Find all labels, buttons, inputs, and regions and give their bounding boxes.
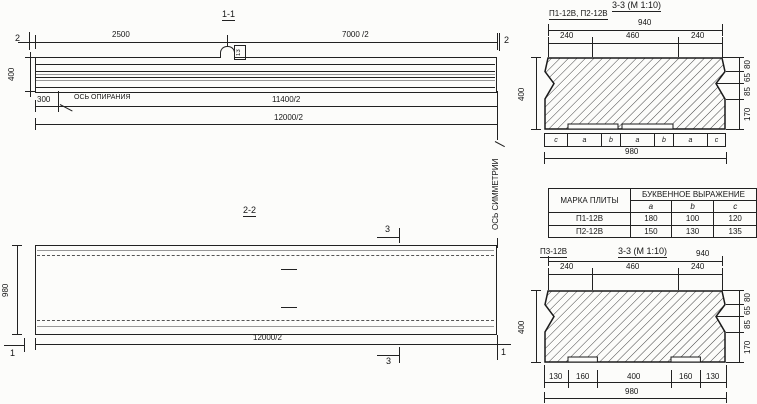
dim-tick	[726, 332, 744, 333]
table-row: П1-12В 180 100 120	[549, 213, 757, 225]
dim-tick	[726, 71, 744, 72]
dim-tick	[548, 256, 549, 266]
dim-tick	[722, 57, 744, 58]
dim-tick	[35, 118, 36, 130]
dim-label-65: 65	[744, 72, 752, 83]
dim-tick	[678, 268, 679, 290]
marker-line	[497, 335, 498, 360]
dim-tick	[544, 392, 545, 403]
dim-tick	[544, 365, 545, 388]
dim-tick	[726, 129, 744, 130]
cross-section-p1-p2	[544, 57, 726, 130]
dim-tick	[678, 37, 679, 57]
dim-line	[739, 290, 740, 363]
dim-tick	[592, 37, 593, 57]
dim-label-240: 240	[691, 263, 704, 271]
dim-label-240: 240	[691, 32, 704, 40]
dim-tick	[726, 152, 727, 164]
strand-line	[36, 64, 495, 65]
hidden-line	[37, 320, 494, 321]
dim-label-11400: 11400/2	[272, 96, 300, 104]
dim-tick	[722, 256, 723, 266]
symmetry-axis-line	[497, 238, 498, 248]
dim-tick	[12, 245, 22, 246]
table-col-c: c	[714, 201, 757, 213]
dim-label-240: 240	[560, 263, 573, 271]
dim-line	[544, 158, 726, 159]
dim-line	[536, 290, 537, 363]
dim-line	[544, 382, 726, 383]
dim-tick	[497, 33, 498, 50]
cross-section-p3	[544, 290, 726, 363]
marker-line	[399, 228, 400, 243]
dim-line	[544, 398, 726, 399]
marker-line	[29, 32, 30, 50]
dim-tick	[531, 290, 541, 291]
strand-line	[36, 71, 495, 72]
dim-tick	[716, 316, 744, 317]
dim-tick	[726, 362, 744, 363]
dim-tick	[531, 129, 541, 130]
dim-tick	[722, 290, 744, 291]
dim-tick	[592, 268, 593, 290]
dim-line	[35, 344, 497, 345]
dim-label-980-bottom-section: 980	[625, 388, 638, 396]
dim-label-85: 85	[744, 318, 752, 331]
dim-label-400-top-section: 400	[518, 81, 526, 107]
dim-label-160: 160	[576, 373, 589, 381]
dim-tick	[568, 370, 569, 388]
extension-line	[58, 91, 59, 112]
center-dash	[281, 307, 297, 308]
letter-cell: b	[655, 134, 674, 146]
loop-tag-label: 13	[236, 47, 242, 58]
center-dash	[281, 269, 297, 270]
section-3-3-bottom-title: 3-3 (М 1:10)	[618, 247, 667, 258]
table-cell-a: 180	[631, 213, 672, 225]
dim-label-65: 65	[744, 305, 752, 316]
dim-label-12000: 12000/2	[274, 114, 303, 122]
dim-line	[548, 43, 722, 44]
dim-line	[536, 57, 537, 130]
dim-label-170: 170	[744, 103, 752, 125]
dim-label-400: 400	[8, 62, 16, 86]
dim-label-170: 170	[744, 336, 752, 358]
dim-tick	[726, 392, 727, 403]
table-header-mark: МАРКА ПЛИТЫ	[549, 189, 631, 213]
dim-label-12000-plan: 12000/2	[253, 334, 282, 342]
dim-tick	[548, 268, 549, 290]
dim-label-400-bottom-section: 400	[518, 314, 526, 340]
marker-line	[24, 338, 25, 352]
plan-outline	[35, 245, 497, 335]
dim-label-460: 460	[626, 32, 639, 40]
dim-label-85: 85	[744, 85, 752, 98]
plate-mark-p3-label: П3-12В	[540, 248, 567, 258]
dim-tick	[548, 37, 549, 57]
strand-line	[36, 87, 495, 88]
strand-line	[36, 80, 495, 81]
dim-tick	[531, 362, 541, 363]
letter-cell: b	[602, 134, 621, 146]
dim-label-130: 130	[549, 373, 562, 381]
dim-label-240: 240	[560, 32, 573, 40]
dim-label-940: 940	[638, 19, 651, 27]
section-1-1-title: 1-1	[222, 10, 235, 21]
dim-label-80: 80	[744, 291, 752, 304]
loop-tag-box: 13	[234, 45, 246, 60]
dim-line	[739, 57, 740, 130]
dim-tick	[726, 99, 744, 100]
letter-cell: c	[545, 134, 568, 146]
section-marker-1-left: 1	[10, 349, 15, 358]
dim-tick	[671, 370, 672, 388]
dim-label-400: 400	[627, 373, 640, 381]
dim-label-160: 160	[679, 373, 692, 381]
dim-tick	[25, 57, 35, 58]
table-row: П2-12В 150 130 135	[549, 225, 757, 237]
table-col-b: b	[671, 201, 714, 213]
letter-cell: c	[708, 134, 725, 146]
table-cell-mark: П1-12В	[549, 213, 631, 225]
table-cell-c: 120	[714, 213, 757, 225]
letter-cell: a	[621, 134, 655, 146]
dim-tick	[722, 268, 723, 290]
section-3-3-top-title: 3-3 (М 1:10)	[612, 1, 661, 12]
dim-tick	[12, 334, 22, 335]
table-header-expression: БУКВЕННОЕ ВЫРАЖЕНИЕ	[631, 189, 757, 201]
dim-label-460: 460	[626, 263, 639, 271]
table-col-a: a	[631, 201, 672, 213]
dim-label-980-top-section: 980	[625, 148, 638, 156]
section-marker-3-bottom: 3	[386, 357, 391, 366]
section-marker-2-right: 2	[504, 36, 509, 45]
dim-tick	[25, 91, 35, 92]
section-marker-1-right: 1	[501, 348, 506, 357]
dim-label-300: 300	[37, 96, 50, 104]
edge-line	[37, 326, 494, 327]
lifting-loop	[220, 46, 235, 58]
support-axis-label: ОСЬ ОПИРАНИЯ	[74, 94, 131, 101]
dim-label-940: 940	[696, 250, 709, 258]
table-cell-c: 135	[714, 225, 757, 237]
dim-tick	[544, 152, 545, 164]
dim-label-80: 80	[744, 58, 752, 71]
dim-line	[17, 245, 18, 335]
strand-line	[36, 74, 495, 75]
dim-tick	[716, 83, 744, 84]
hidden-line	[37, 255, 494, 256]
dim-tick	[531, 57, 541, 58]
plate-marks-label: П1-12В, П2-12В	[549, 10, 608, 20]
strand-line	[36, 77, 495, 78]
table-cell-b: 100	[671, 213, 714, 225]
marker-line	[399, 347, 400, 363]
dim-tick	[722, 37, 723, 57]
dim-tick	[700, 370, 701, 388]
break-jog	[495, 141, 505, 147]
marker-line	[377, 237, 399, 238]
symmetry-axis-label: ОСЬ СИММЕТРИИ	[492, 150, 500, 238]
dim-tick	[548, 24, 549, 36]
dim-tick	[35, 100, 36, 112]
dim-tick	[35, 338, 36, 350]
dim-tick	[597, 370, 598, 388]
letter-cell: a	[568, 134, 602, 146]
table-cell-b: 130	[671, 225, 714, 237]
table-cell-mark: П2-12В	[549, 225, 631, 237]
dim-label-7000: 7000 /2	[342, 31, 369, 39]
letter-cell: a	[674, 134, 708, 146]
section-marker-3-top: 3	[385, 225, 390, 234]
letter-dim-strip: c a b a b a c	[544, 133, 726, 147]
dim-line	[548, 274, 722, 275]
plate-letter-table: МАРКА ПЛИТЫ БУКВЕННОЕ ВЫРАЖЕНИЕ a b c П1…	[548, 188, 757, 238]
section-marker-2-left: 2	[15, 34, 20, 43]
table-cell-a: 150	[631, 225, 672, 237]
dim-tick	[35, 35, 36, 49]
dim-label-130: 130	[706, 373, 719, 381]
dim-label-980: 980	[2, 277, 10, 303]
section-2-2-title: 2-2	[243, 206, 256, 217]
dim-tick	[722, 24, 723, 36]
edge-line	[37, 250, 494, 251]
marker-line	[4, 345, 24, 346]
dim-tick	[726, 304, 744, 305]
drawing-sheet: 1-1 2500 7000 /2 2 2 13 400 300 ОСЬ ОПИР…	[0, 0, 757, 404]
marker-line	[499, 33, 500, 51]
symmetry-axis-line	[497, 91, 498, 140]
dim-label-2500: 2500	[112, 31, 130, 39]
dim-tick	[726, 365, 727, 388]
dim-line	[18, 42, 497, 43]
dim-line	[35, 124, 497, 125]
marker-line	[493, 344, 511, 345]
dim-line	[35, 106, 497, 107]
